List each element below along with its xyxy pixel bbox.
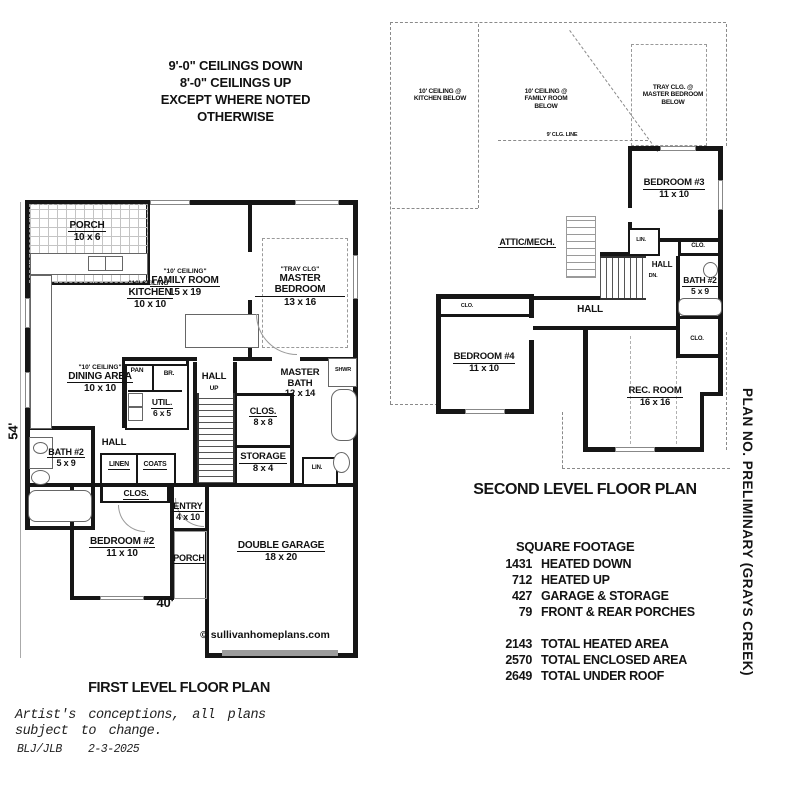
room-name: MASTER BATH [281,367,320,389]
ceiling-height-note: 9'-0" CEILINGS DOWN 8'-0" CEILINGS UP EX… [138,58,333,126]
table-row: 427 GARAGE & STORAGE [492,588,707,604]
ceiling-break-dashed [478,24,479,208]
sqft-value: 2649 [492,668,532,684]
room-size: 15 x 19 [144,287,226,298]
closet-name: CLOS. [123,489,150,500]
room-size: 18 x 20 [231,552,331,563]
label-linen-small: LIN. [303,465,331,472]
note-family-below: 10' CEILING @ FAMILY ROOM BELOW [511,88,581,110]
room-name: BATH #2 [682,276,717,287]
window-marker [25,372,30,408]
label-hall-main: HALL [568,304,612,315]
disclaimer-line2: subject to change. [15,724,162,739]
room-label-bath2: BATH #2 5 x 9 [44,447,88,468]
note-line: OTHERWISE [138,109,333,126]
bathtub-symbol [678,298,722,316]
table-row: 1431 HEATED DOWN [492,556,707,572]
room-label-storage: STORAGE 8 x 4 [228,452,298,474]
wall [533,326,585,330]
room-label-bedroom3: BEDROOM #3 11 x 10 [629,178,719,200]
room-name: BEDROOM #4 [453,352,516,364]
sqft-label: HEATED DOWN [541,556,631,572]
window-marker [25,298,30,328]
label-porch-front: PORCH [164,553,214,564]
window-marker [660,146,696,151]
room-label-bath2-up: BATH #2 5 x 9 [678,276,722,296]
sqft-label: FRONT & REAR PORCHES [541,604,695,620]
sink-symbol [105,256,123,271]
plan-number-vertical: PLAN NO. PRELIMINARY (GRAYS CREEK) [740,388,755,678]
room-name: FAMILY ROOM [150,275,219,287]
wall [233,357,272,361]
room-size: 8 x 8 [235,417,291,427]
note-line: 8'-0" CEILINGS UP [138,75,333,92]
room-size: 5 x 9 [678,287,722,297]
credit-initials: BLJ/JLB [17,743,62,756]
table-row: 2649 TOTAL UNDER ROOF [492,668,707,684]
kitchen-island [185,314,259,348]
room-name: BEDROOM #2 [89,536,155,548]
wall [237,445,293,448]
ceiling-break-dashed [392,208,478,209]
label-hall-stairs: HALL [194,372,234,383]
room-name: PORCH [172,553,206,564]
room-name: DOUBLE GARAGE [237,540,325,552]
label-pantry: PAN [122,367,152,374]
sqft-value: 2143 [492,636,532,652]
label-clg-line: 9' CLG. LINE [536,132,588,138]
room-size: 5 x 9 [44,458,88,468]
sqft-label: TOTAL HEATED AREA [541,636,669,652]
room-name: PORCH [68,220,105,232]
room-size: 10 x 10 [110,299,190,310]
label-closet4: CLO. [452,303,482,309]
label-attic: ATTIC/MECH. [483,237,571,248]
room-label-utility: UTIL. 6 x 5 [140,398,184,418]
table-row: 79 FRONT & REAR PORCHES [492,604,707,620]
window-marker [615,447,655,452]
wall [248,200,252,252]
label-up: UP [199,385,229,392]
dimension-40ft: 40' [145,596,185,611]
kitchen-counter [30,275,52,429]
sqft-label: TOTAL UNDER ROOF [541,668,664,684]
room-name: MASTER BEDROOM [255,273,345,296]
table-row: 2570 TOTAL ENCLOSED AREA [492,652,707,668]
garage-door [222,650,338,656]
wall [676,354,722,358]
wall [529,294,534,318]
room-size: 8 x 4 [228,464,298,475]
room-label-bedroom4: BEDROOM #4 11 x 10 [439,352,529,374]
room-size: 16 x 16 [610,398,700,409]
floor-plan-sheet: 9'-0" CEILINGS DOWN 8'-0" CEILINGS UP EX… [0,0,796,800]
wall [678,253,721,256]
roof-outline-dashed [390,404,438,405]
clg-line-dashed [498,140,648,141]
sqft-label: TOTAL ENCLOSED AREA [541,652,687,668]
wall [583,326,680,330]
roof-outline-dashed [390,22,391,404]
roof-overhang-dashed [726,332,727,450]
room-size: 11 x 10 [439,364,529,375]
wall [25,526,95,530]
note-tray-below: TRAY CLG. @ MASTER BEDROOM BELOW [633,84,713,106]
room-size: 10 x 10 [60,383,140,394]
room-name: STORAGE [239,452,286,464]
sink-symbol [88,256,106,271]
first-level-title: FIRST LEVEL FLOOR PLAN [84,680,274,696]
dimension-54ft: 54' [7,411,22,451]
closet-name: COATS [143,461,168,470]
table-row: 712 HEATED UP [492,572,707,588]
room-name: UTIL. [151,398,173,409]
label-linen2: LIN. [628,237,654,243]
plan-date: 2-3-2025 [88,743,139,756]
label-hall-lower: HALL [94,438,134,449]
room-size: 13 x 16 [255,297,345,308]
window-marker [150,200,190,205]
wall [533,296,600,300]
ceiling-tag: "TRAY CLG" [255,266,345,273]
sqft-label: HEATED UP [541,572,610,588]
window-marker [465,409,505,414]
room-label-rec-room: REC. ROOM 16 x 16 [610,386,700,408]
bathtub-symbol [28,490,92,522]
room-size: 6 x 5 [140,409,184,419]
room-label-family-room: "10' CEILING" FAMILY ROOM 15 x 19 [144,268,226,299]
room-size: 12 x 14 [272,389,328,400]
second-level-title: SECOND LEVEL FLOOR PLAN [450,481,720,499]
sqft-value: 427 [492,588,532,604]
sqft-value: 1431 [492,556,532,572]
wall [441,314,529,317]
note-kitchen-below: 10' CEILING @ KITCHEN BELOW [405,88,475,103]
wall [718,355,723,396]
sqft-label: GARAGE & STORAGE [541,588,669,604]
roof-overhang-dashed [562,468,730,469]
room-label-master-closet: CLOS. 8 x 8 [235,406,291,427]
room-label-master-bath: MASTER BATH 12 x 14 [272,368,328,400]
door-swing [256,314,297,355]
wall [700,396,704,452]
bathtub-symbol [331,389,357,441]
room-label-porch: PORCH 10 x 6 [47,220,127,243]
wall [583,326,588,452]
roof-outline-dashed [726,24,727,146]
copyright-text: © sullivanhomeplans.com [200,630,330,642]
window-marker [100,596,144,600]
room-name: BEDROOM #3 [643,178,706,190]
room-name: ATTIC/MECH. [498,237,555,248]
room-label-garage: DOUBLE GARAGE 18 x 20 [231,540,331,563]
door-swing [118,505,145,532]
label-shower: SHWR [328,367,358,373]
note-line: 9'-0" CEILINGS DOWN [138,58,333,75]
ceiling-tag: "10' CEILING" [144,268,226,275]
wall [100,501,170,503]
window-marker [353,255,358,299]
room-size: 10 x 6 [47,232,127,243]
room-name: CLOS. [249,406,278,417]
wall [529,340,534,414]
table-row: 2143 TOTAL HEATED AREA [492,636,707,652]
window-marker [295,200,339,205]
room-name: BATH #2 [47,447,84,458]
wall [676,316,722,319]
toilet-symbol [333,452,350,473]
toilet-symbol [31,470,50,485]
label-linen: LINEN [99,461,139,470]
roof-overhang-dashed [562,412,563,468]
label-broom: BR. [156,370,182,377]
sqft-value: 712 [492,572,532,588]
square-footage-table: SQUARE FOOTAGE 1431 HEATED DOWN 712 HEAT… [492,539,707,684]
room-size: 11 x 10 [629,190,719,201]
room-label-master-bedroom: "TRAY CLG" MASTER BEDROOM 13 x 16 [255,266,345,308]
room-name: ENTRY [172,501,203,512]
room-size: 11 x 10 [77,548,167,559]
wall [152,366,154,390]
label-hall-upper: HALL [645,261,679,270]
stairs-down [600,256,646,300]
room-name: REC. ROOM [627,386,682,398]
label-down: DN. [644,273,662,279]
square-footage-title: SQUARE FOOTAGE [516,539,707,554]
note-line: EXCEPT WHERE NOTED [138,92,333,109]
sqft-value: 79 [492,604,532,620]
label-closet-bath: CLO. [682,336,712,343]
room-size: 4 x 10 [163,512,213,522]
label-closet3: CLO. [683,243,713,250]
room-label-bedroom2: BEDROOM #2 11 x 10 [77,536,167,559]
sqft-value: 2570 [492,652,532,668]
front-porch-slab [174,531,207,599]
room-label-entry: ENTRY 4 x 10 [163,501,213,522]
roof-outline-dashed [390,22,726,23]
label-closet2: CLOS. [111,489,161,500]
table-spacer [492,620,707,636]
closet-name: LINEN [108,461,130,470]
disclaimer-line1: Artist's conceptions, all plans [15,708,266,723]
label-coats: COATS [135,461,175,470]
wall [436,294,534,299]
